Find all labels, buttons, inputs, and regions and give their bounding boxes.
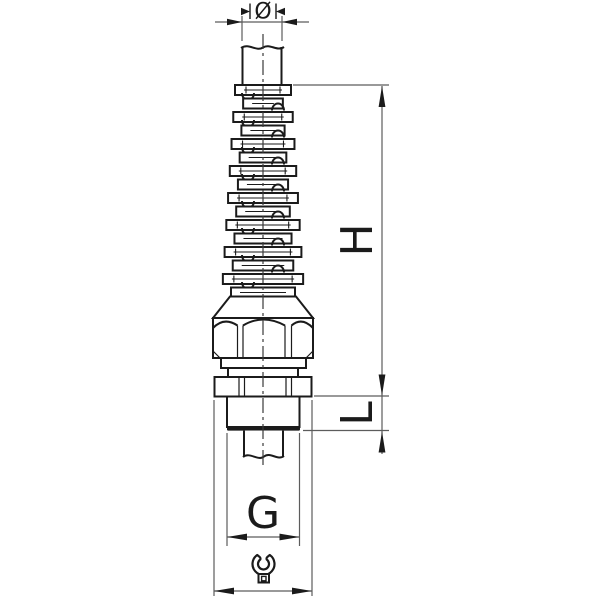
height-label: H [332,223,383,256]
dimension-cable-diameter: Ø [215,0,309,41]
technical-drawing: Ø H L G [0,0,600,600]
length-label: L [332,401,383,426]
open-end-wrench-icon [253,555,275,583]
thread-size-label: G [246,488,280,539]
dimension-thread-length: L [303,396,389,453]
diameter-label: Ø [254,0,271,25]
dimension-overall-height: H [293,85,389,454]
